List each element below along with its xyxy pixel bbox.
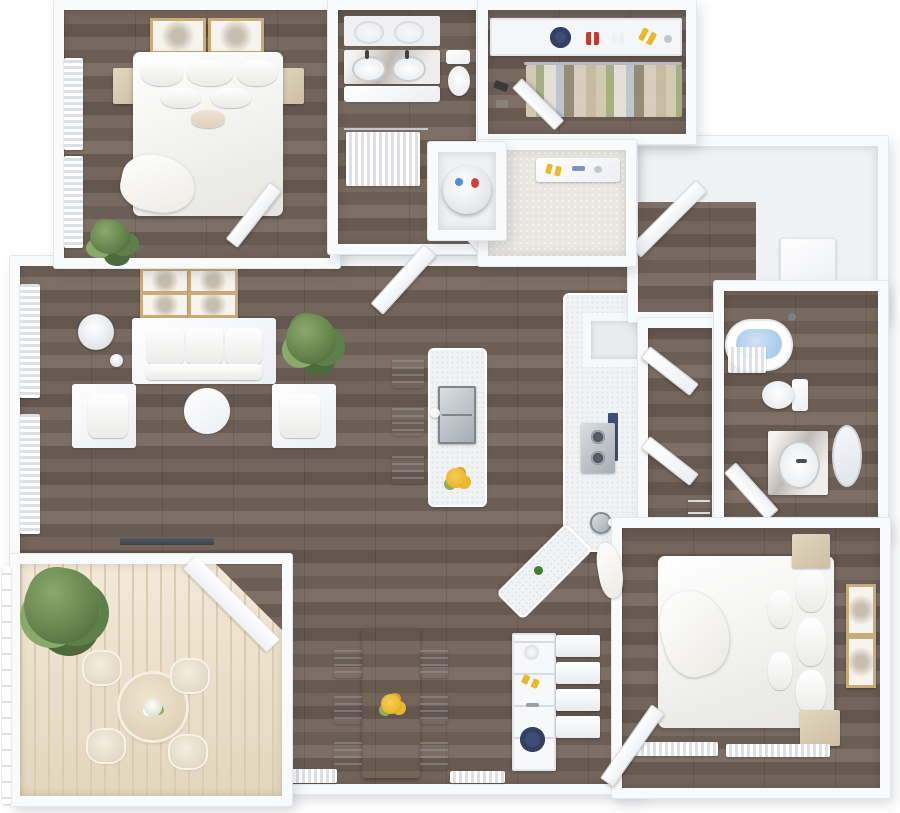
room-bedroom-2	[612, 518, 890, 798]
dining-chair	[420, 648, 448, 678]
bed	[658, 556, 834, 728]
mirror-sink-reflection	[394, 21, 424, 44]
wall-art-frame	[188, 268, 238, 294]
comb-accessory	[526, 703, 539, 707]
shower-curtain	[346, 132, 420, 186]
wall-art-frame	[140, 268, 190, 294]
room-bedroom-1	[54, 0, 340, 268]
bed-pillow	[796, 670, 826, 714]
sun-hat	[550, 27, 571, 48]
dining-chair	[334, 740, 362, 770]
potted-plant	[286, 314, 336, 364]
sofa-cushion	[147, 328, 184, 364]
red-shoes	[586, 32, 599, 45]
sofa	[132, 318, 276, 384]
accent-pillow	[191, 110, 225, 128]
patio-chair	[172, 660, 208, 692]
armchair-cushion	[88, 394, 128, 438]
vanity-sink	[352, 56, 386, 82]
cooktop-burner	[591, 430, 605, 444]
room-balcony	[10, 554, 292, 806]
dining-chair	[334, 694, 362, 724]
bed	[133, 52, 283, 216]
bed-pillow	[237, 60, 277, 86]
shower-rod	[344, 128, 428, 130]
silver-accessory	[594, 166, 602, 173]
dining-chair	[334, 648, 362, 678]
window-curtain	[20, 284, 40, 398]
wall-art-frame	[208, 18, 264, 54]
wall-art-frame	[188, 292, 238, 318]
white-sandals	[612, 33, 624, 44]
bed-pillow	[768, 590, 792, 628]
bar-stool	[392, 358, 424, 388]
toilet	[762, 381, 794, 409]
bar-stool	[392, 454, 424, 484]
bed-pillow	[211, 88, 251, 108]
dining-chair	[420, 694, 448, 724]
throw-blanket	[651, 583, 738, 684]
entry-steps	[556, 635, 600, 753]
bed-pillow	[796, 568, 826, 612]
window-curtain	[726, 744, 830, 757]
wall-art-frame	[846, 584, 876, 636]
gas-cooktop	[581, 423, 615, 473]
bed-pillow	[161, 88, 201, 108]
sun-hat	[520, 727, 545, 752]
island-faucet	[430, 408, 440, 418]
floor-plan-canvas	[0, 0, 900, 813]
floor-shoes	[496, 100, 508, 108]
island-sink-divider	[442, 414, 472, 416]
patio-chair	[84, 652, 120, 684]
armchair-right	[272, 384, 336, 448]
kitchen-counter-diagonal	[499, 526, 590, 617]
step-tread	[556, 662, 600, 684]
bed-pillow	[768, 652, 792, 690]
vanity-faucet	[405, 50, 409, 59]
floor-lamp	[78, 314, 114, 350]
sofa-seat	[146, 364, 262, 380]
nightstand	[800, 710, 840, 746]
linen-closet-door	[641, 436, 699, 486]
water-heater-hot-line	[471, 178, 479, 188]
toilet-tank	[446, 50, 470, 64]
wall-art-frame	[150, 18, 206, 54]
mirror-strip	[344, 16, 440, 46]
window-curtain	[450, 771, 505, 783]
balcony-railing	[2, 566, 11, 804]
vanity-faucet	[365, 50, 369, 59]
floor-lamp-base	[110, 354, 123, 367]
vanity-faucet	[796, 459, 807, 463]
step-tread	[556, 689, 600, 711]
potted-tree	[24, 568, 100, 644]
patio-chair	[88, 730, 124, 762]
window-curtain	[20, 414, 40, 534]
toilet	[448, 66, 470, 96]
potted-plant	[90, 220, 130, 254]
wall-art-frame	[140, 292, 190, 318]
window-curtain	[64, 156, 83, 248]
fruit-bowl	[446, 468, 466, 488]
vanity-cabinet-front	[344, 86, 440, 102]
shower-head	[788, 313, 796, 321]
balcony-slider-threshold	[120, 538, 214, 545]
throw-blanket	[116, 149, 200, 219]
mirror-sink-reflection	[354, 21, 384, 44]
step-tread	[556, 635, 600, 657]
wall-art-frame	[846, 636, 876, 688]
dining-chair	[420, 740, 448, 770]
island-sink	[438, 386, 476, 444]
shower-curtain	[728, 347, 766, 373]
comb-accessory	[572, 166, 585, 171]
glass-bowl	[524, 645, 539, 660]
bed-pillow	[796, 618, 826, 666]
armchair-left	[72, 384, 136, 448]
bed-pillow	[187, 60, 233, 86]
step-tread	[556, 716, 600, 738]
room-bathroom-2	[714, 281, 888, 539]
entry-shelf-unit	[512, 633, 556, 771]
vanity-sink	[778, 441, 820, 489]
toilet-tank	[792, 379, 808, 411]
coffee-table	[184, 388, 230, 434]
linen-closet-door	[641, 346, 699, 396]
bed-pillow	[141, 60, 183, 86]
green-bottle	[534, 566, 543, 575]
cooktop-burner	[591, 451, 605, 465]
vanity-sink	[392, 56, 426, 82]
silver-accessory	[664, 35, 672, 43]
yellow-shoes	[521, 674, 540, 689]
window-curtain	[64, 58, 83, 150]
bar-stool	[392, 406, 424, 436]
room-utility-closet	[428, 142, 506, 240]
sofa-cushion	[186, 328, 223, 364]
water-heater-cold-line	[455, 178, 463, 186]
patio-chair	[170, 736, 206, 768]
oval-mirror	[832, 425, 862, 487]
water-heater	[443, 166, 491, 214]
closet-bench	[536, 158, 620, 182]
sunflower-centerpiece	[381, 694, 401, 714]
floor-shoes	[493, 80, 509, 92]
closet-shelf	[490, 18, 682, 56]
nightstand	[792, 534, 830, 568]
room-walk-in-closet	[478, 0, 696, 144]
sofa-cushion	[225, 328, 262, 364]
flower-centerpiece	[144, 698, 162, 716]
yellow-shoes	[638, 27, 657, 46]
kitchen-island	[430, 350, 485, 505]
window-curtain	[287, 769, 337, 783]
armchair-cushion	[280, 394, 320, 438]
yellow-shoes	[545, 163, 562, 176]
